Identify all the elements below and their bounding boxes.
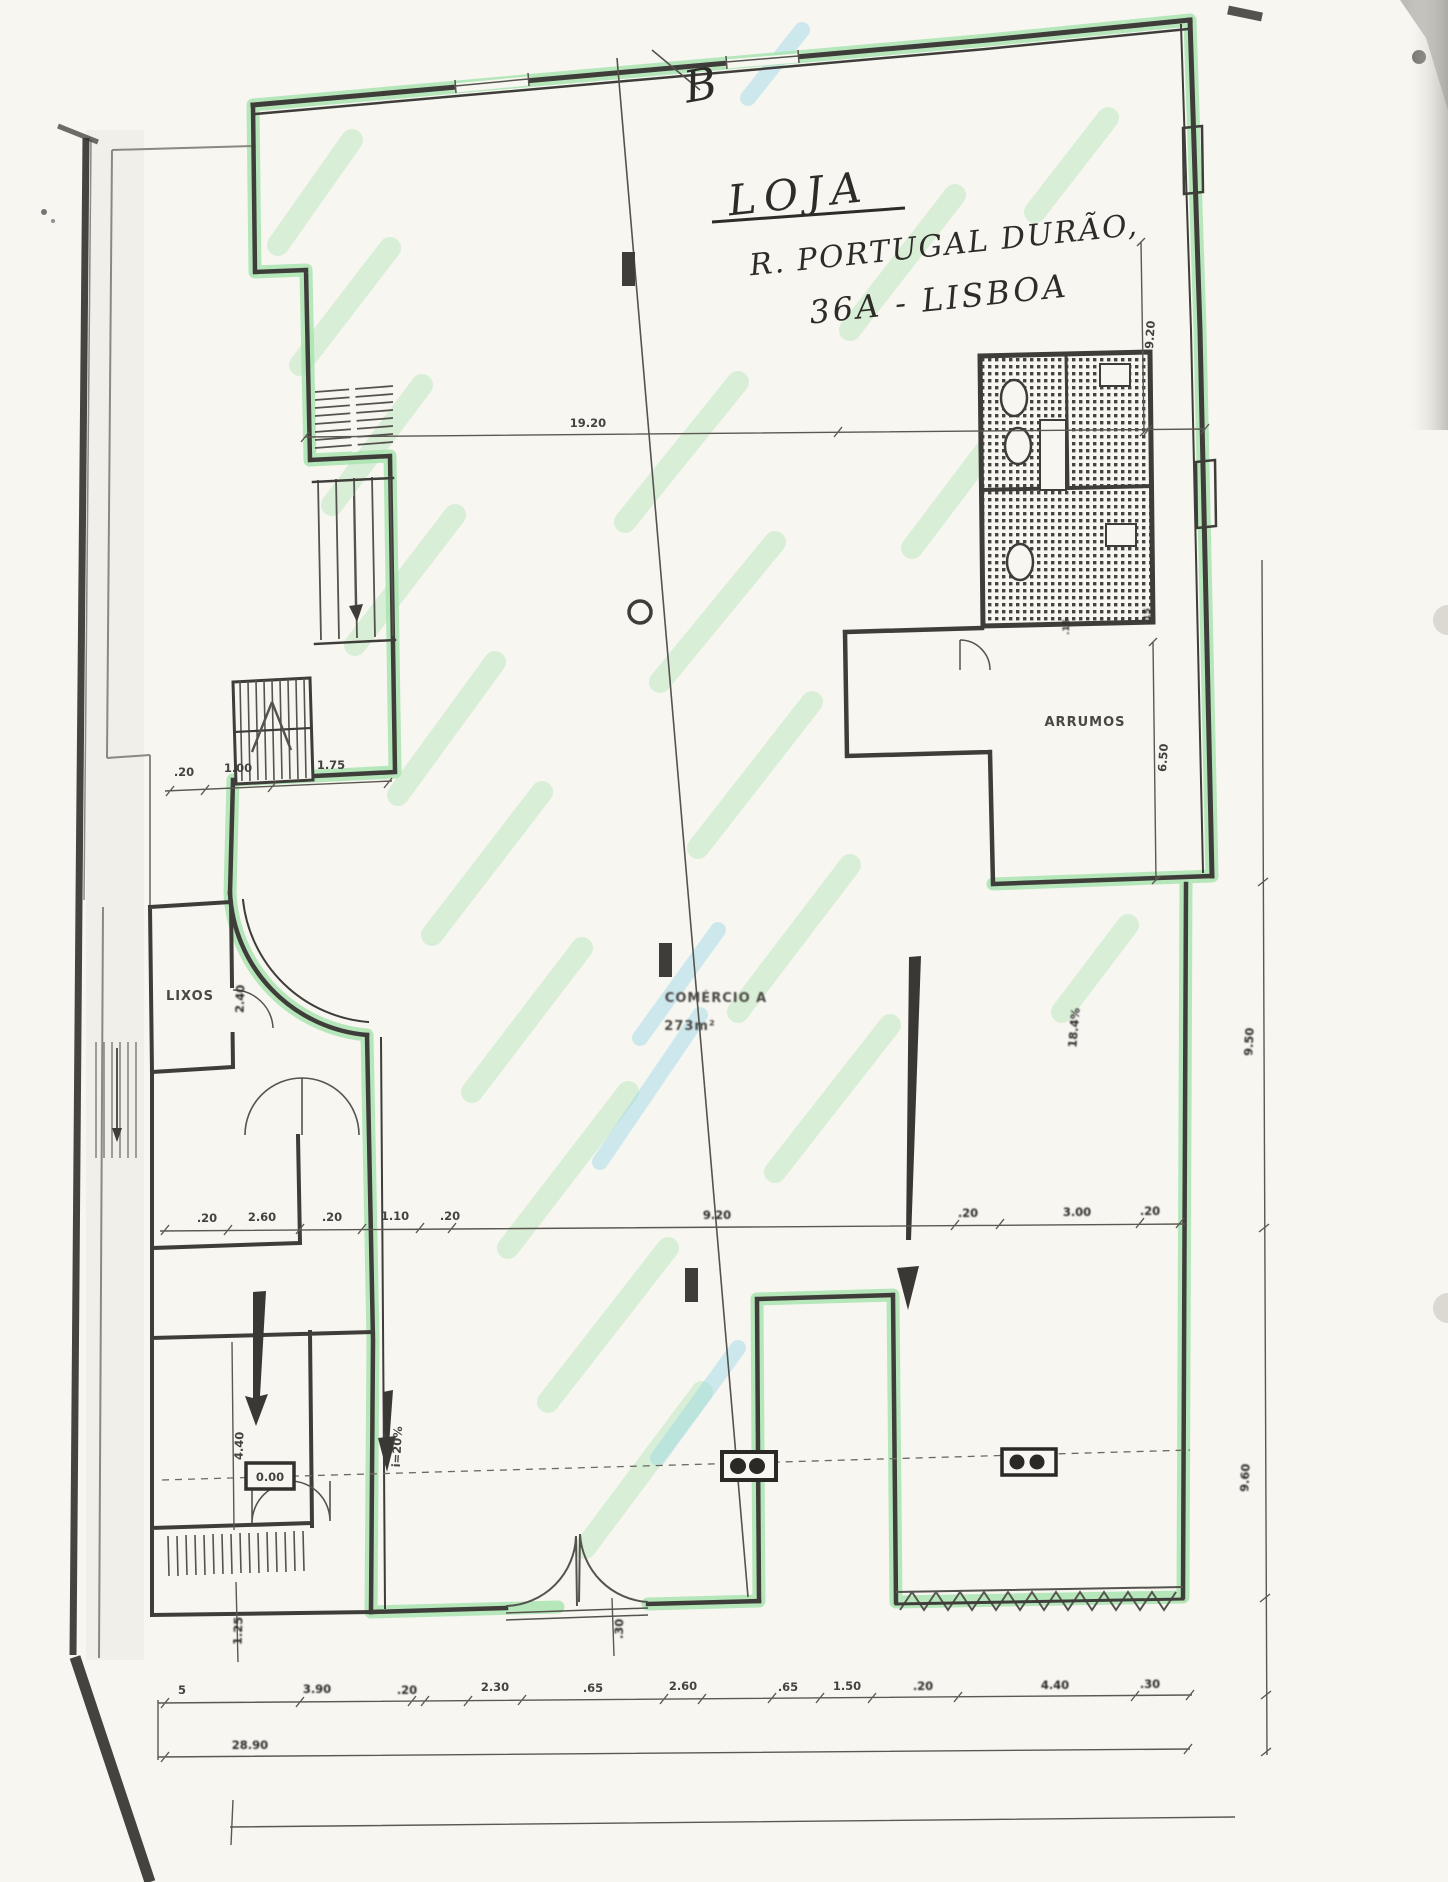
dim-bot-2: .20: [397, 1683, 417, 1697]
handwriting: B LOJA R. PORTUGAL DURÃO, 36A - LISBOA: [652, 50, 1140, 332]
dim-mid-8: .20: [1140, 1204, 1160, 1218]
room-label-comercio: COMÉRCIO A: [665, 990, 767, 1006]
dim-mid-2: .20: [322, 1210, 342, 1224]
dim-right-upper: 9.20: [1142, 320, 1158, 349]
scanned-floor-plan-page: 19.20 .20 1.00 1.75 .20 2.60 .20 1.10 .2…: [0, 0, 1448, 1882]
green-streaks: [278, 118, 1128, 1548]
dim-mid-4: .20: [440, 1209, 460, 1223]
dim-wall-thickness-2: .15: [1143, 608, 1153, 624]
slope-label-left: i=20%: [389, 1425, 405, 1467]
dim-mid-1: 2.60: [248, 1210, 276, 1224]
dim-mid-3: 1.10: [381, 1209, 409, 1223]
dim-bot-3: 2.30: [481, 1680, 509, 1694]
punch-hole-top: [1433, 605, 1448, 635]
wc-block: [980, 352, 1153, 626]
entrance-double-door: [506, 1534, 648, 1606]
dim-bottom-line-3: [230, 1800, 1235, 1845]
room-label-comercio-area: 273m²: [664, 1019, 715, 1034]
slope-label-right: 18.4%: [1065, 1007, 1082, 1048]
dim-bot-0: 5: [178, 1683, 186, 1697]
dim-right-arrumos: 6.50: [1155, 743, 1171, 772]
dim-bottom-line-2: [158, 1700, 1192, 1762]
dim-ul-2: 1.75: [317, 758, 345, 772]
column-circle: [629, 601, 651, 623]
dim-left-bottom: 1.25: [231, 1616, 246, 1645]
dim-bot-9: 4.40: [1041, 1678, 1069, 1692]
dim-mid-7: 3.00: [1063, 1205, 1091, 1219]
curved-wall: [230, 893, 367, 1035]
ramp-arrow-right: [906, 956, 921, 1240]
se-step-walls: [757, 1295, 896, 1602]
dim-ul-0: .20: [174, 765, 194, 779]
corridor-double-door-arcs: [245, 1078, 359, 1135]
top-wall: [253, 20, 1190, 105]
dim-bot-5: 2.60: [669, 1679, 697, 1693]
dim-bot-10: .30: [1140, 1677, 1160, 1691]
dim-mid-5: 9.20: [703, 1208, 731, 1222]
dim-left-room: 4.40: [232, 1431, 247, 1460]
handwritten-address-2: 36A - LISBOA: [807, 267, 1070, 332]
dim-bot-4: .65: [583, 1681, 603, 1695]
scan-artifact-top-mark: [1228, 10, 1262, 17]
pillar: [659, 943, 672, 977]
dim-bot-6: .65: [778, 1680, 798, 1694]
dim-middle-line: [160, 1218, 1185, 1235]
toilet-fixture: [1001, 380, 1027, 416]
dim-mid-0: .20: [197, 1211, 217, 1225]
dim-bottom-total: 28.90: [232, 1738, 268, 1752]
floor-plan-svg: 19.20 .20 1.00 1.75 .20 2.60 .20 1.10 .2…: [0, 0, 1448, 1882]
stairs-bottom-left-hatch: [168, 1531, 304, 1576]
dim-wall-thickness-1: .15: [1062, 619, 1072, 635]
stairs-top-left-hatch: [315, 386, 393, 452]
room-label-arrumos: ARRUMOS: [1045, 715, 1126, 730]
sink-fixture: [1100, 364, 1130, 386]
right-edge-shadow: [1406, 0, 1448, 430]
walls: [150, 20, 1216, 1620]
right-wall-lower: [1183, 884, 1186, 1597]
left-gutter-shading: [86, 130, 144, 1660]
punch-hole-bottom: [1433, 1293, 1448, 1323]
sink-fixture: [1106, 524, 1136, 546]
arrumos-door-arc: [960, 640, 990, 670]
room-label-lixos: LIXOS: [166, 989, 214, 1004]
pillar: [685, 1268, 698, 1302]
dim-ul-1: 1.00: [224, 761, 252, 775]
big-stair-arrow: [245, 1291, 268, 1426]
dim-left-lixos: 2.40: [233, 984, 248, 1013]
dim-right-lower-upper: 9.50: [1241, 1027, 1256, 1056]
dim-mid-6: .20: [958, 1206, 978, 1220]
toilet-fixture: [1007, 544, 1033, 580]
dim-top-span: 19.20: [570, 416, 606, 430]
toilet-fixture: [1005, 428, 1031, 464]
dim-bot-7: 1.50: [833, 1679, 861, 1693]
dim-bot-8: .20: [913, 1679, 933, 1693]
elevation-value-000: 0.00: [256, 1470, 284, 1484]
dim-right-lower-lower: 9.60: [1237, 1463, 1252, 1492]
dim-bot-1: 3.90: [303, 1682, 331, 1696]
section-line: [617, 58, 748, 1597]
pillar: [622, 252, 635, 286]
highlighter-streaks: [278, 30, 1128, 1548]
dim-door-width: .30: [612, 1618, 627, 1639]
dim-right-column: [1258, 560, 1271, 1756]
scan-artifact-bottom-left: [75, 1657, 150, 1882]
lixos-walls: [150, 902, 233, 1072]
